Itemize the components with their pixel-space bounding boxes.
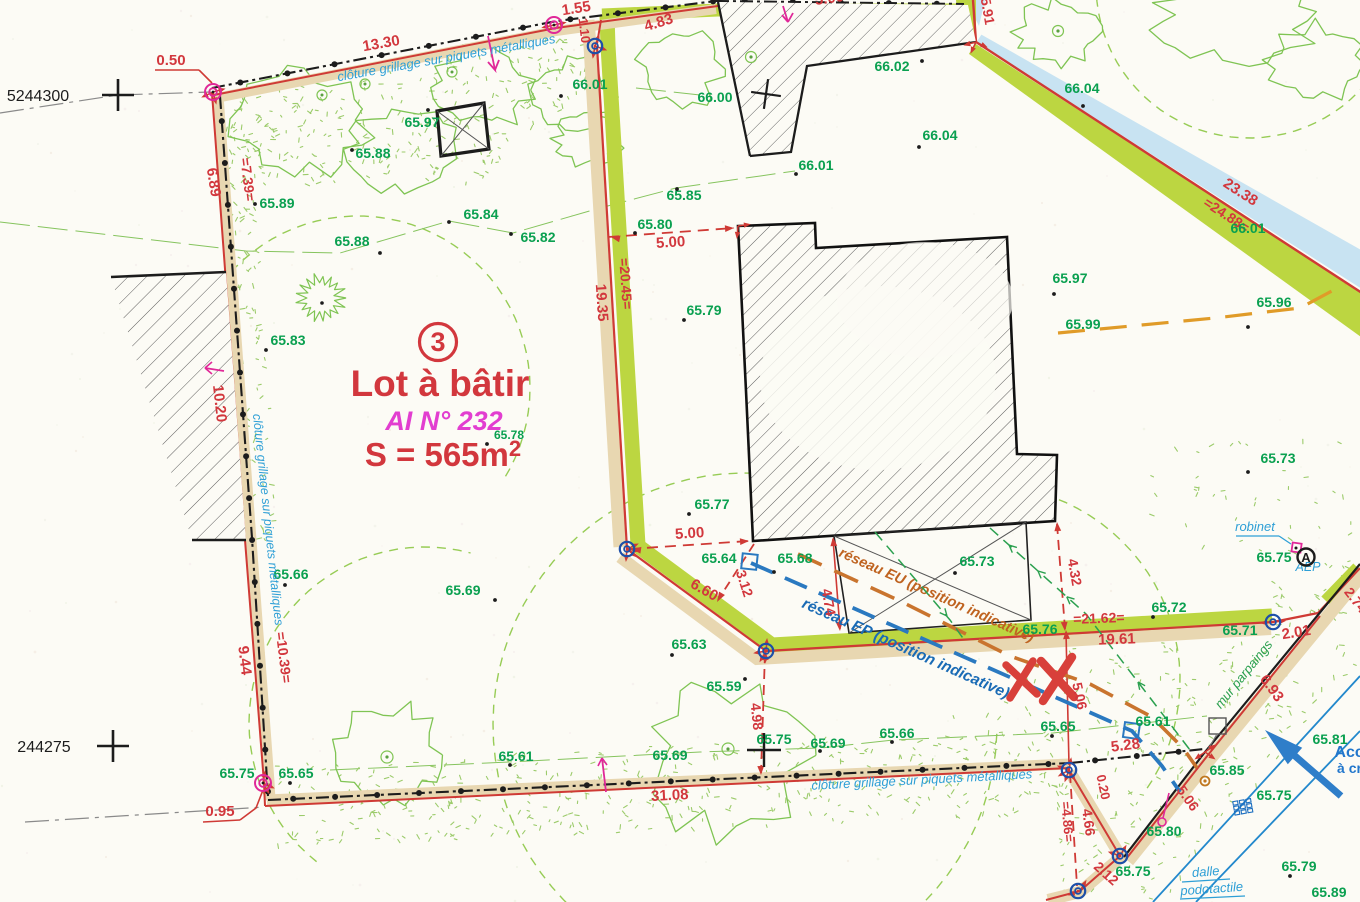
- svg-text:65.85: 65.85: [1209, 762, 1244, 778]
- svg-text:65.65: 65.65: [1040, 718, 1075, 734]
- svg-text:65.83: 65.83: [270, 332, 305, 348]
- svg-text:AI N° 232: AI N° 232: [384, 406, 502, 436]
- svg-text:65.68: 65.68: [777, 550, 812, 566]
- svg-text:65.80: 65.80: [1146, 823, 1181, 839]
- svg-text:65.79: 65.79: [686, 302, 721, 318]
- svg-text:65.75: 65.75: [1115, 863, 1150, 879]
- svg-text:19.61: 19.61: [1098, 630, 1136, 648]
- svg-text:A: A: [1301, 550, 1311, 565]
- svg-text:65.77: 65.77: [694, 496, 729, 512]
- svg-text:66.02: 66.02: [874, 58, 909, 74]
- svg-text:65.97: 65.97: [404, 114, 439, 130]
- svg-text:31.08: 31.08: [651, 786, 689, 805]
- svg-text:65.73: 65.73: [1260, 450, 1295, 466]
- svg-text:65.69: 65.69: [652, 747, 687, 763]
- svg-text:65.75: 65.75: [219, 765, 254, 781]
- svg-text:19.35: 19.35: [592, 283, 612, 322]
- svg-text:3: 3: [430, 327, 445, 357]
- svg-text:65.96: 65.96: [1256, 294, 1291, 310]
- svg-text:0.50: 0.50: [156, 52, 185, 69]
- svg-text:65.75: 65.75: [756, 731, 791, 747]
- svg-text:4.98: 4.98: [748, 702, 767, 731]
- svg-text:=21.62=: =21.62=: [1073, 609, 1125, 627]
- svg-text:66.01: 66.01: [572, 76, 607, 92]
- svg-text:65.89: 65.89: [1311, 884, 1346, 900]
- svg-text:65.66: 65.66: [879, 725, 914, 741]
- svg-text:5244300: 5244300: [7, 88, 69, 105]
- svg-text:65.88: 65.88: [355, 145, 390, 161]
- svg-text:65.84: 65.84: [463, 206, 498, 222]
- svg-text:66.00: 66.00: [697, 89, 732, 105]
- svg-text:66.01: 66.01: [1230, 220, 1265, 236]
- svg-text:65.61: 65.61: [498, 748, 533, 764]
- svg-text:65.85: 65.85: [666, 187, 701, 203]
- svg-text:à créer: à créer: [1337, 760, 1360, 776]
- svg-text:65.69: 65.69: [810, 735, 845, 751]
- svg-text:65.63: 65.63: [671, 636, 706, 652]
- svg-text:65.64: 65.64: [701, 550, 736, 566]
- svg-text:S = 565m2: S = 565m2: [365, 436, 521, 473]
- svg-text:65.99: 65.99: [1065, 316, 1100, 332]
- svg-text:65.97: 65.97: [1052, 270, 1087, 286]
- svg-text:65.82: 65.82: [520, 229, 555, 245]
- svg-text:5.00: 5.00: [656, 233, 686, 252]
- svg-text:65.59: 65.59: [706, 678, 741, 694]
- svg-text:66.04: 66.04: [922, 127, 957, 143]
- svg-text:65.69: 65.69: [445, 582, 480, 598]
- svg-text:robinet: robinet: [1235, 519, 1276, 534]
- svg-text:65.65: 65.65: [278, 765, 313, 781]
- svg-text:65.73: 65.73: [959, 553, 994, 569]
- svg-text:65.80: 65.80: [637, 216, 672, 232]
- svg-text:65.61: 65.61: [1135, 713, 1170, 729]
- svg-text:244275: 244275: [17, 739, 70, 756]
- svg-text:65.88: 65.88: [334, 233, 369, 249]
- svg-text:66.01: 66.01: [798, 157, 833, 173]
- svg-text:0.95: 0.95: [205, 803, 234, 820]
- svg-text:Lot à bâtir: Lot à bâtir: [351, 363, 530, 404]
- svg-text:65.72: 65.72: [1151, 599, 1186, 615]
- svg-text:65.89: 65.89: [259, 195, 294, 211]
- svg-text:65.75: 65.75: [1256, 549, 1291, 565]
- svg-text:1.10: 1.10: [575, 17, 593, 44]
- svg-text:5.00: 5.00: [675, 524, 705, 543]
- svg-text:5.28: 5.28: [1110, 735, 1141, 755]
- svg-text:65.79: 65.79: [1281, 858, 1316, 874]
- svg-text:65.76: 65.76: [1022, 621, 1057, 637]
- svg-text:65.71: 65.71: [1222, 622, 1257, 638]
- svg-text:65.81: 65.81: [1312, 731, 1347, 747]
- svg-text:65.75: 65.75: [1256, 787, 1291, 803]
- svg-text:9.44: 9.44: [234, 645, 255, 677]
- svg-text:dalle: dalle: [1191, 863, 1219, 880]
- svg-text:66.04: 66.04: [1064, 80, 1099, 96]
